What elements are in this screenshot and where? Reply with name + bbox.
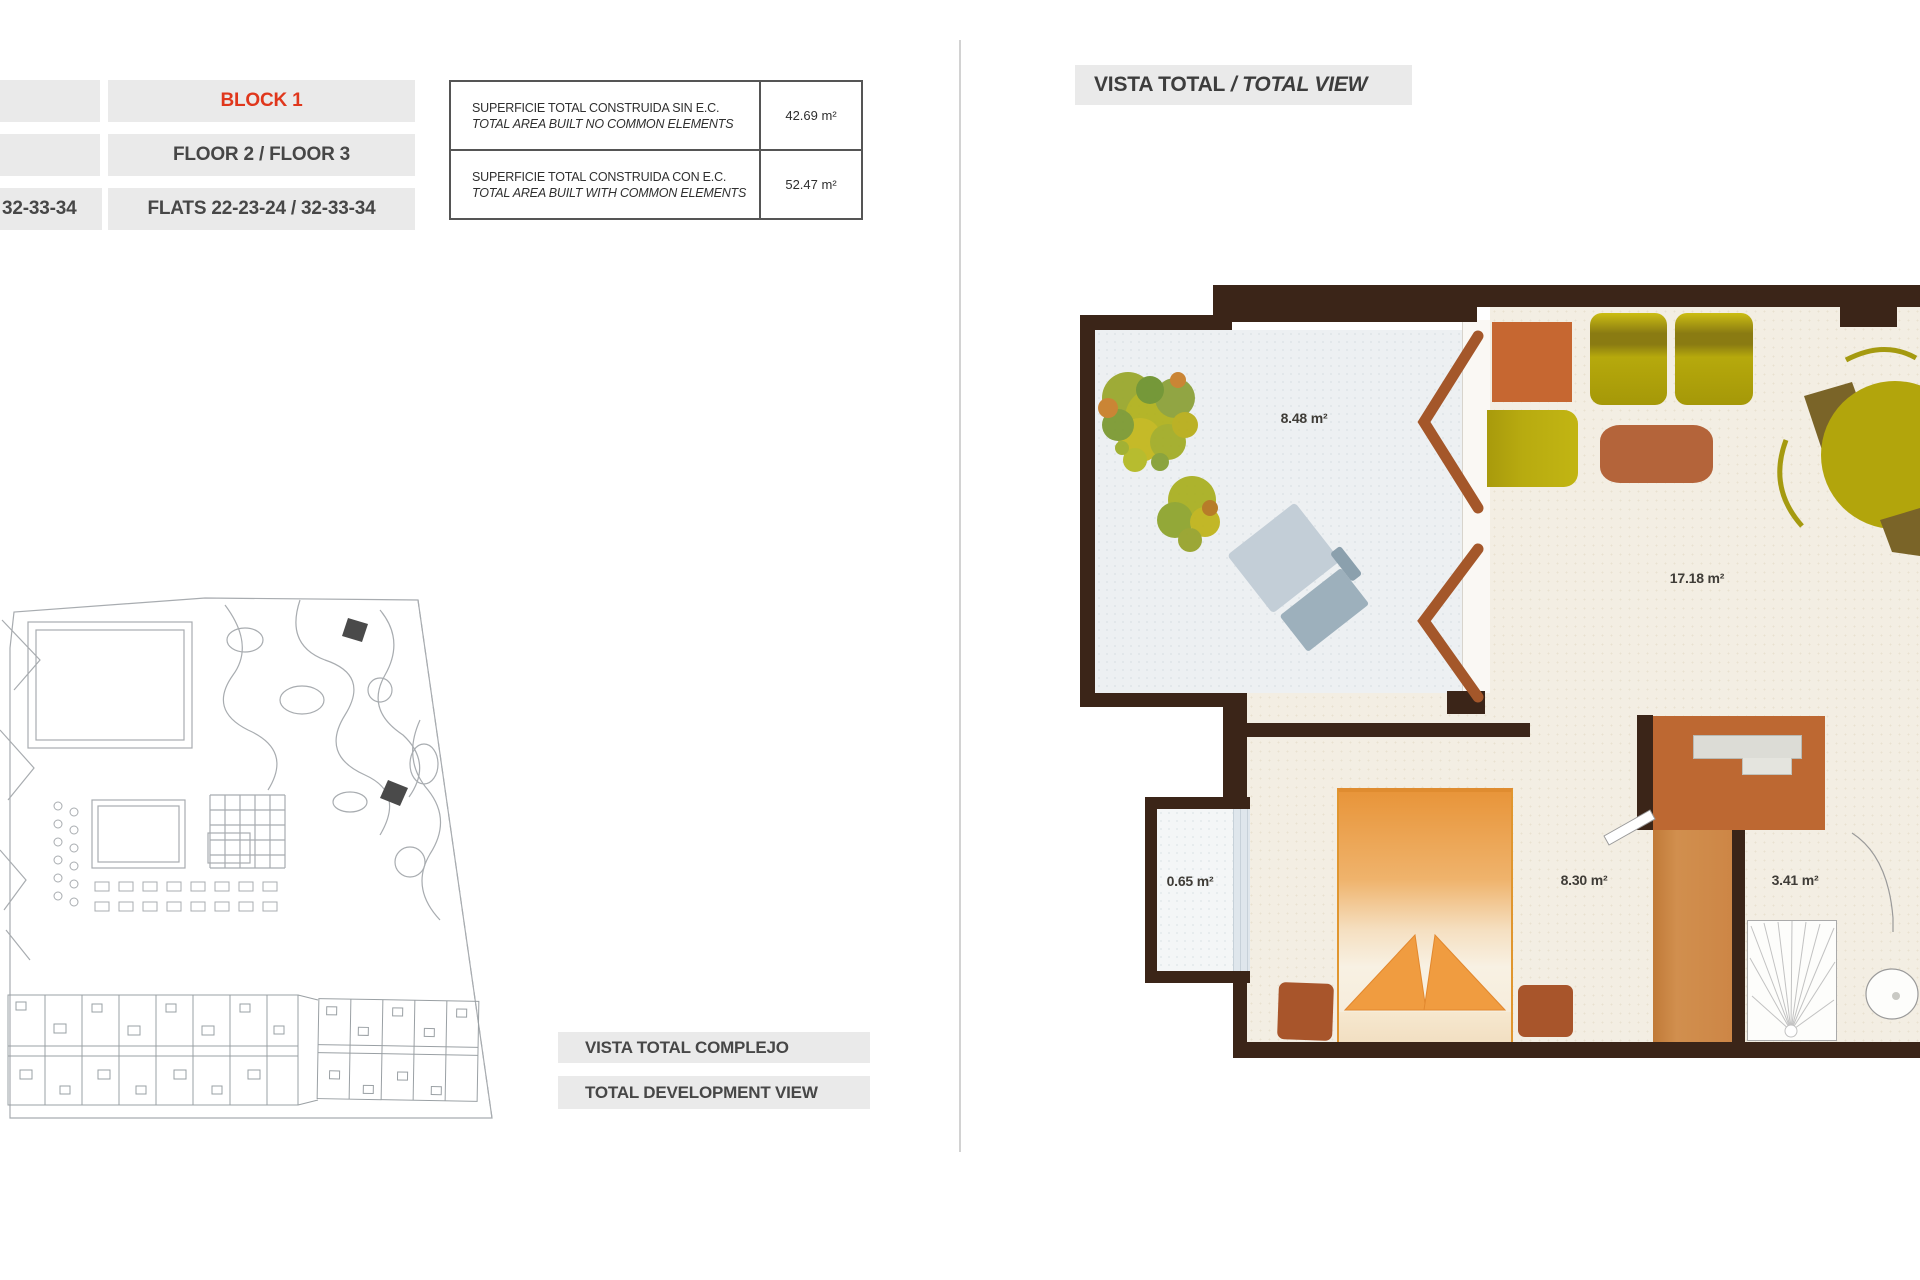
info-bar-left-row3: 32-33-34 — [0, 188, 102, 230]
site-label-es-bar: VISTA TOTAL COMPLEJO — [558, 1032, 870, 1063]
area-row2-label-es: SUPERFICIE TOTAL CONSTRUIDA CON E.C. — [472, 170, 759, 184]
site-label-en-bar: TOTAL DEVELOPMENT VIEW — [558, 1076, 870, 1109]
room-label-bedroom: 8.30 m² — [1561, 872, 1608, 888]
area-row1-label-es: SUPERFICIE TOTAL CONSTRUIDA SIN E.C. — [472, 101, 759, 115]
kitchen-shelf — [1693, 735, 1802, 759]
sofa-cushion-2 — [1675, 313, 1753, 405]
closet-floor — [1157, 809, 1233, 971]
bed — [1337, 788, 1513, 1042]
site-label-es: VISTA TOTAL COMPLEJO — [585, 1038, 789, 1058]
flats-label: FLATS 22-23-24 / 32-33-34 — [147, 198, 375, 220]
wall-closet-top — [1145, 797, 1250, 809]
total-view-sep: / — [1225, 73, 1242, 97]
wall-closet-left — [1145, 797, 1157, 983]
wall-terrace-left — [1080, 315, 1095, 707]
kitchen-cabinet — [1653, 716, 1825, 830]
wall-kitchen-left — [1637, 715, 1653, 830]
nightstand-right — [1518, 985, 1573, 1037]
total-view-es: VISTA TOTAL — [1094, 73, 1225, 97]
corridor-floor — [1653, 830, 1732, 1042]
sofa-cushion-1 — [1590, 313, 1667, 405]
terrace-door-track — [1462, 320, 1492, 715]
total-view-header: VISTA TOTAL / TOTAL VIEW — [1075, 65, 1412, 105]
bed-foot-stripe — [1339, 1012, 1511, 1042]
info-bar-flats: FLATS 22-23-24 / 32-33-34 — [108, 188, 415, 230]
area-table-row: SUPERFICIE TOTAL CONSTRUIDA SIN E.C. TOT… — [451, 82, 861, 149]
wall-bathroom-left — [1732, 830, 1745, 1042]
area-row2-label-en: TOTAL AREA BUILT WITH COMMON ELEMENTS — [472, 186, 759, 200]
info-bar-left-row2 — [0, 134, 100, 176]
room-label-living: 17.18 m² — [1670, 570, 1724, 586]
area-row2-value: 52.47 m² — [759, 151, 861, 218]
wall-bottom — [1233, 1042, 1920, 1058]
area-table: SUPERFICIE TOTAL CONSTRUIDA SIN E.C. TOT… — [449, 80, 863, 220]
block-label: BLOCK 1 — [221, 90, 303, 112]
kitchen-shelf-tab — [1742, 758, 1792, 775]
room-label-bathroom: 3.41 m² — [1772, 872, 1819, 888]
coffee-table — [1600, 425, 1713, 483]
wall-top — [1213, 285, 1920, 307]
wall-bedroom-left-upper — [1223, 693, 1247, 809]
info-bar-block: BLOCK 1 — [108, 80, 415, 122]
info-bar-left-row1 — [0, 80, 100, 122]
area-row1-value: 42.69 m² — [759, 82, 861, 149]
area-table-row: SUPERFICIE TOTAL CONSTRUIDA CON E.C. TOT… — [451, 149, 861, 218]
info-bar-left-row3-label: 32-33-34 — [2, 198, 76, 220]
wall-terrace-bottom — [1080, 693, 1247, 707]
site-label-en: TOTAL DEVELOPMENT VIEW — [585, 1083, 818, 1103]
armchair-yellow — [1487, 410, 1578, 487]
shower-tray — [1747, 920, 1837, 1041]
armchair-orange — [1492, 322, 1572, 402]
closet-window — [1233, 809, 1250, 971]
nightstand-left — [1277, 982, 1334, 1041]
total-view-en: TOTAL VIEW — [1242, 73, 1367, 97]
info-bar-floor: FLOOR 2 / FLOOR 3 — [108, 134, 415, 176]
wall-top-pillar — [1840, 305, 1897, 327]
wall-closet-bottom — [1145, 971, 1250, 983]
wall-bedroom-divider — [1223, 723, 1530, 737]
terrace-floor — [1095, 330, 1462, 693]
area-row1-label-en: TOTAL AREA BUILT NO COMMON ELEMENTS — [472, 117, 759, 131]
wall-top-inner — [1232, 307, 1477, 322]
room-label-terrace: 8.48 m² — [1281, 410, 1328, 426]
room-label-closet: 0.65 m² — [1167, 873, 1214, 889]
floor-label: FLOOR 2 / FLOOR 3 — [173, 144, 350, 166]
wall-bedroom-left-lower — [1233, 983, 1247, 1042]
wall-terrace-top — [1080, 315, 1232, 330]
page-divider — [959, 40, 961, 1152]
wall-door-post — [1447, 691, 1485, 714]
